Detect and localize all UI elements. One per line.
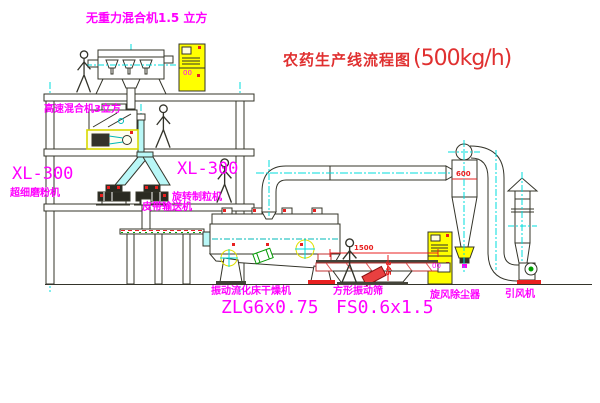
dimension-screen-height: 345 [384, 261, 391, 276]
label-mill-model: XL-300 [12, 166, 73, 183]
label-fan: 引风机 [505, 290, 535, 300]
cabinet-right-marker: 00 [432, 263, 441, 270]
title-text: 农药生产线流程图 [283, 49, 411, 70]
label-belt-conveyor: 皮带输送机 [142, 203, 192, 213]
dimension-cyclone-diameter: 600 [456, 171, 471, 178]
cabinet-top-marker: 00 [183, 70, 192, 77]
cyclone-separator [448, 140, 480, 272]
diagram-title: 农药生产线流程图 (500kg/h) [283, 46, 511, 71]
label-gravity-mixer: 无重力混合机1.5 立方 [86, 12, 207, 24]
label-dryer-name: 振动流化床干燥机 [211, 287, 291, 297]
label-dryer-model: ZLG6x0.75 [221, 299, 319, 317]
title-capacity: (500kg/h) [413, 46, 511, 71]
label-high-speed-mixer: 高速混合机3立方 [44, 105, 121, 115]
person-figure [156, 105, 170, 148]
label-granulator-model: XL-300 [177, 161, 238, 178]
dimension-screen-length: 1500 [354, 245, 373, 252]
label-cyclone: 旋风除尘器 [430, 291, 480, 301]
induced-draft-fan [517, 263, 541, 284]
y-chute [115, 152, 170, 185]
mill-left [96, 185, 130, 205]
label-screen-model: FS0.6x1.5 [336, 299, 434, 317]
flow-diagram-canvas: 农药生产线流程图 (500kg/h) 无重力混合机1.5 立方 高速混合机3立方… [0, 0, 600, 403]
label-mill-name: 超细磨粉机 [10, 189, 60, 199]
person-figure [77, 51, 91, 92]
control-cabinet-top [179, 44, 205, 91]
control-cabinet-right [428, 232, 452, 284]
belt-conveyor [120, 229, 212, 284]
fluid-bed-dryer [210, 208, 340, 284]
label-screen-name: 方形振动筛 [333, 287, 383, 297]
outlet-duct [470, 146, 521, 281]
